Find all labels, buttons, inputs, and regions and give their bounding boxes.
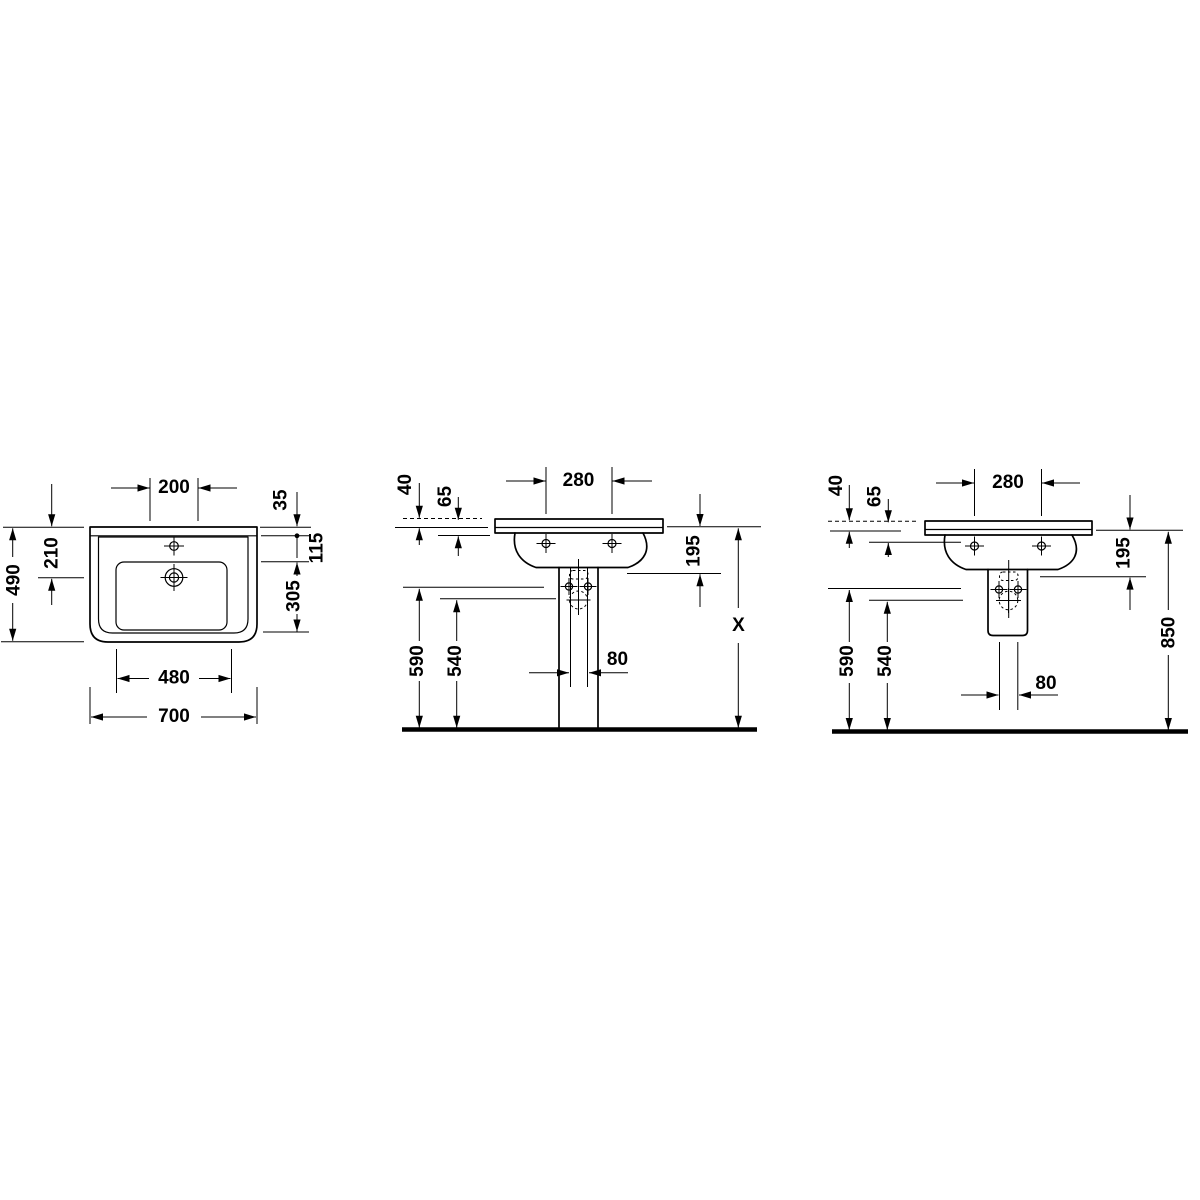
dim-label-590: 590: [837, 645, 858, 677]
dim-rim-lip-35: 35: [260, 489, 311, 538]
dim-tap-spacing-280: 280: [506, 467, 652, 514]
dim-label-40: 40: [826, 475, 847, 496]
dim-label-195: 195: [1114, 537, 1135, 569]
dim-fix-upper-540: 540: [440, 599, 556, 728]
dim-fix-lower-590: 590: [403, 587, 544, 728]
drain-marker: [161, 564, 188, 591]
dim-label-210: 210: [42, 537, 63, 569]
dim-label-200: 200: [158, 477, 190, 498]
dim-rim-face-65: 65: [435, 486, 490, 556]
dim-label-280: 280: [563, 470, 595, 491]
basin-outline: [495, 519, 663, 727]
dim-label-280: 280: [992, 472, 1024, 493]
dim-tap-spacing-280: 280: [936, 469, 1080, 516]
dim-rim-top-40: 40: [826, 475, 919, 548]
dim-label-65: 65: [435, 486, 456, 508]
dim-label-80: 80: [1035, 673, 1056, 694]
dim-label-115: 115: [307, 532, 328, 563]
canvas: 200 35 115 305 210: [0, 0, 1200, 1200]
dim-rim-top-40: 40: [395, 474, 488, 545]
dim-label-65: 65: [865, 486, 886, 508]
dim-label-305: 305: [284, 580, 305, 612]
tap-hole-marker: [537, 534, 556, 553]
dim-label-540: 540: [875, 645, 896, 677]
dim-rim-height-850: 850: [1159, 532, 1180, 730]
front-pedestal-view: 280 40 65 195 X: [395, 467, 761, 730]
dim-outlet-drop-195: 195: [1040, 495, 1183, 610]
dim-outlet-width-80: 80: [529, 649, 628, 673]
dim-label-540: 540: [445, 645, 466, 677]
dim-rim-to-bowl-115: 115: [261, 532, 328, 563]
tap-hole-marker: [603, 534, 622, 553]
dim-label-80: 80: [607, 649, 628, 670]
dim-fix-upper-540: 540: [869, 600, 963, 730]
top-view: 200 35 115 305 210: [1, 477, 328, 727]
dim-label-700: 700: [158, 706, 190, 727]
dim-label-40: 40: [395, 474, 416, 495]
tap-hole-marker: [965, 537, 984, 556]
dim-label-195: 195: [684, 535, 705, 567]
tap-hole-marker: [164, 537, 184, 556]
dim-label-x: X: [732, 615, 745, 636]
washbasin-technical-drawing: 200 35 115 305 210: [0, 0, 1200, 1200]
dim-label-590: 590: [407, 645, 428, 677]
drain-channel: [570, 559, 589, 687]
dim-label-850: 850: [1159, 617, 1180, 649]
dim-bowl-width-480: 480: [117, 649, 232, 693]
front-semi-pedestal-view: 280 40 65 195 850: [826, 469, 1188, 732]
dim-install-height-x: X: [732, 528, 745, 728]
dim-label-35: 35: [271, 489, 292, 511]
siphon-hole-marker: [996, 588, 1021, 613]
dim-tap-spacing-200: 200: [111, 477, 237, 521]
dim-bowl-depth-305: 305: [263, 563, 309, 633]
dim-label-490: 490: [4, 564, 25, 596]
dim-outlet-width-80: 80: [961, 673, 1058, 695]
tap-hole-marker: [1032, 537, 1051, 556]
dim-label-480: 480: [158, 668, 190, 689]
